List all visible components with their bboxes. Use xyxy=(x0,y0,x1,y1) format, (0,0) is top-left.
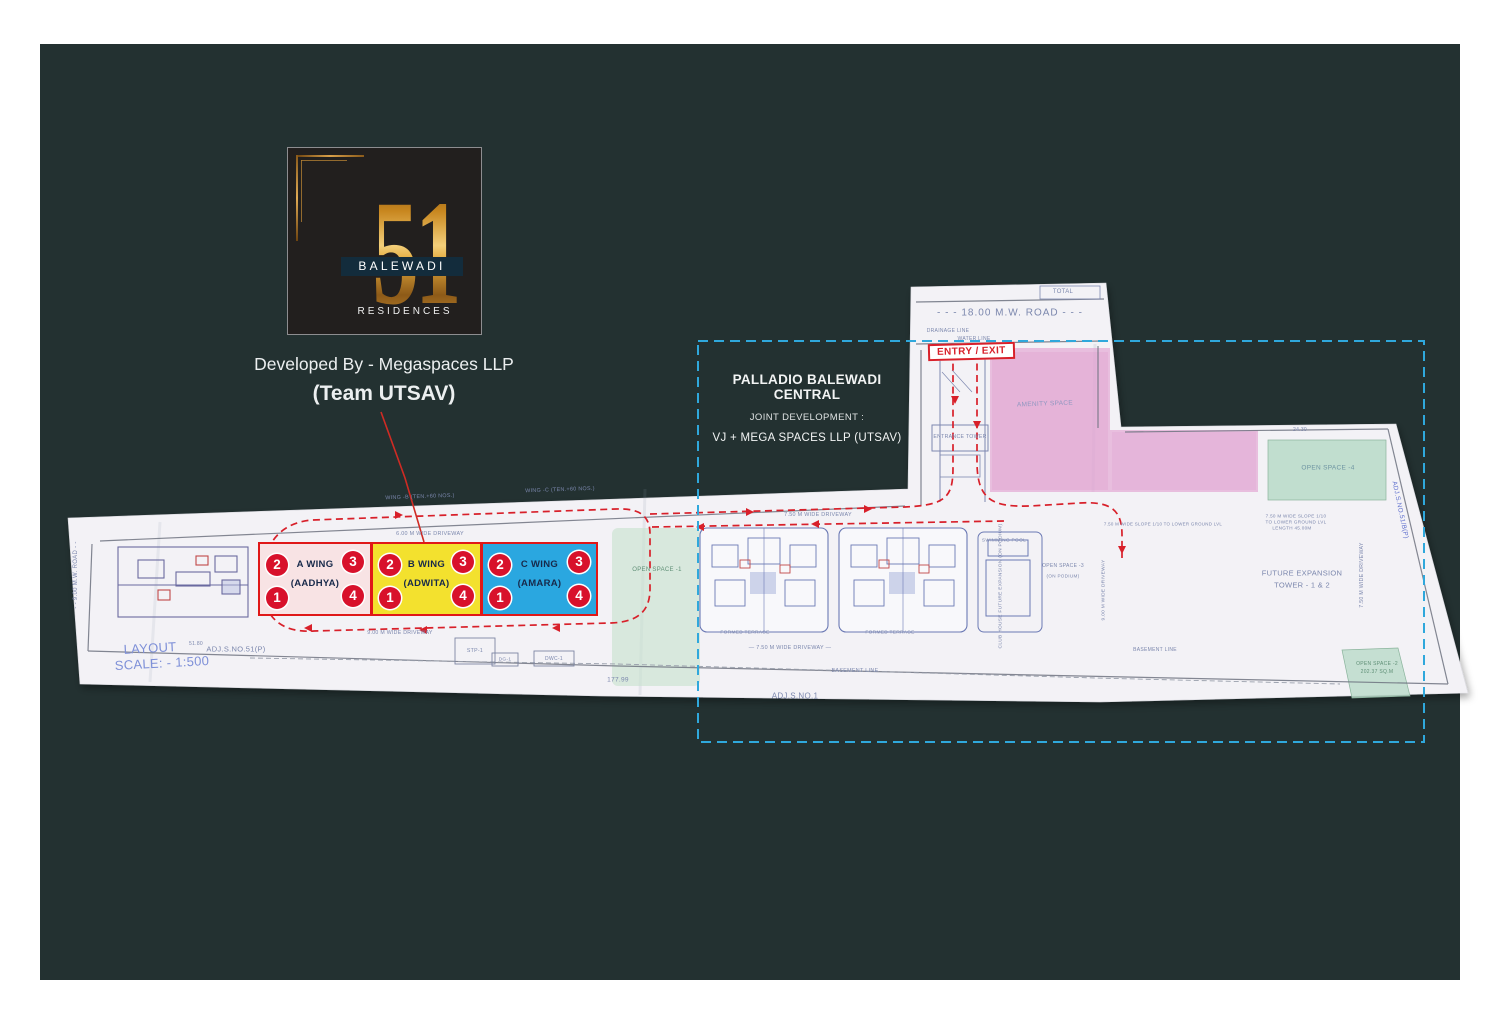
plan-label: BASEMENT LINE xyxy=(1133,647,1177,653)
unit-badge: 4 xyxy=(342,585,364,607)
plan-label: OPEN SPACE -2 xyxy=(1356,661,1398,667)
unit-badge: 1 xyxy=(379,587,401,609)
plan-label: DWC-1 xyxy=(545,656,563,662)
plan-label: 9.00 M WIDE DRIVEWAY xyxy=(1102,560,1107,621)
plan-label: 7.50 M WIDE DRIVEWAY xyxy=(1359,542,1365,607)
plan-label: 7.50 M WIDE DRIVEWAY xyxy=(784,512,852,518)
wing-a-name: A WING xyxy=(297,559,334,570)
logo-residences-text: RESIDENCES xyxy=(344,306,466,317)
wing-b-alias: (ADWITA) xyxy=(403,578,449,589)
plan-label: - - - 18.00 M.W. ROAD - - - xyxy=(937,308,1083,319)
unit-badge: 3 xyxy=(342,551,364,573)
gold-corner-line xyxy=(296,155,298,241)
wing-a-block: A WING (AADHYA) 2 3 1 4 xyxy=(258,542,372,616)
unit-badge: 3 xyxy=(452,551,474,573)
plan-label: FORMED TERRACE xyxy=(720,631,769,636)
plan-label: OPEN SPACE -4 xyxy=(1301,465,1354,472)
palladio-subtitle: JOINT DEVELOPMENT : xyxy=(700,412,914,423)
plan-label: TO LOWER GROUND LVL xyxy=(1266,520,1327,525)
gold-corner-line xyxy=(296,155,364,157)
plan-label: TOWER - 1 & 2 xyxy=(1274,581,1330,590)
gold-corner-line xyxy=(301,160,347,161)
wing-a-alias: (AADHYA) xyxy=(291,578,340,589)
logo-balewadi-band: BALEWADI xyxy=(341,257,463,276)
plan-label: — 7.50 M WIDE DRIVEWAY — xyxy=(749,645,832,651)
wing-b-block: B WING (ADWITA) 2 3 1 4 xyxy=(371,542,482,616)
plan-label: 51.80 xyxy=(189,641,203,647)
plan-label: OPEN SPACE -3 xyxy=(1042,563,1084,569)
plan-label: DG-1 xyxy=(499,658,512,663)
plan-label: 6.00 M WIDE DRIVEWAY xyxy=(396,531,464,537)
dark-panel xyxy=(40,44,1460,980)
unit-badge: 2 xyxy=(379,554,401,576)
plan-label: WATER LINE xyxy=(957,336,990,342)
plan-label: SWIMMING POOL xyxy=(982,539,1026,544)
plan-label: 24.30 xyxy=(1293,427,1307,433)
plan-label: LENGTH 45.00M xyxy=(1272,526,1311,531)
plan-label: 202.37 SQ.M xyxy=(1361,669,1394,675)
palladio-title: PALLADIO BALEWADI CENTRAL xyxy=(700,372,914,402)
plan-label: 177.99 xyxy=(607,677,629,684)
plan-label: TOTAL xyxy=(1053,289,1073,295)
plan-label: 7.50 M WIDE SLOPE 1/10 TO LOWER GROUND L… xyxy=(1104,522,1222,527)
plan-label: OPEN SPACE -1 xyxy=(632,567,681,573)
wing-c-block: C WING (AMARA) 2 3 1 4 xyxy=(481,542,598,616)
plan-label: BASEMENT LINE xyxy=(832,668,879,674)
unit-badge: 4 xyxy=(568,585,590,607)
plan-label: FUTURE EXPANSION xyxy=(1262,569,1343,578)
unit-badge: 1 xyxy=(266,587,288,609)
flyer-page: - - - 18.00 M.W. ROAD - - -TOTALDRAINAGE… xyxy=(0,0,1500,1026)
palladio-partners: VJ + MEGA SPACES LLP (UTSAV) xyxy=(700,432,914,444)
plan-label: CLUB HOUSE FUTURE EXPANSION (ON PODIUM) xyxy=(999,524,1004,649)
plan-label: ADJ.S.NO.1 xyxy=(772,692,819,701)
plan-label: ENTRANCE TOWER xyxy=(933,434,986,440)
unit-badge: 1 xyxy=(489,587,511,609)
entry-exit-label: ENTRY / EXIT xyxy=(928,342,1015,361)
plan-label: ADJ.S.NO.51(P) xyxy=(206,645,265,654)
unit-badge: 4 xyxy=(452,585,474,607)
plan-label: STP-1 xyxy=(467,648,483,654)
developer-line: Developed By - Megaspaces LLP xyxy=(248,354,520,375)
plan-label: (ON PODIUM) xyxy=(1047,574,1080,579)
team-line: (Team UTSAV) xyxy=(248,382,520,406)
developer-caption: Developed By - Megaspaces LLP (Team UTSA… xyxy=(248,354,520,406)
wing-c-alias: (AMARA) xyxy=(518,578,562,589)
gold-corner-line xyxy=(301,160,302,222)
wing-c-name: C WING xyxy=(521,559,558,570)
plan-label: FORMED TERRACE xyxy=(865,631,914,636)
plan-label: 7.50 M WIDE SLOPE 1/10 xyxy=(1266,514,1327,519)
wing-b-name: B WING xyxy=(408,559,445,570)
palladio-note: PALLADIO BALEWADI CENTRAL JOINT DEVELOPM… xyxy=(700,372,914,444)
unit-badge: 3 xyxy=(568,551,590,573)
unit-badge: 2 xyxy=(266,554,288,576)
unit-badge: 2 xyxy=(489,554,511,576)
plan-label: DRAINAGE LINE xyxy=(927,328,970,334)
plan-label: 9.00 M WIDE DRIVEWAY xyxy=(367,630,432,636)
plan-label: - - 9.00 M.W. ROAD - - xyxy=(73,541,79,608)
